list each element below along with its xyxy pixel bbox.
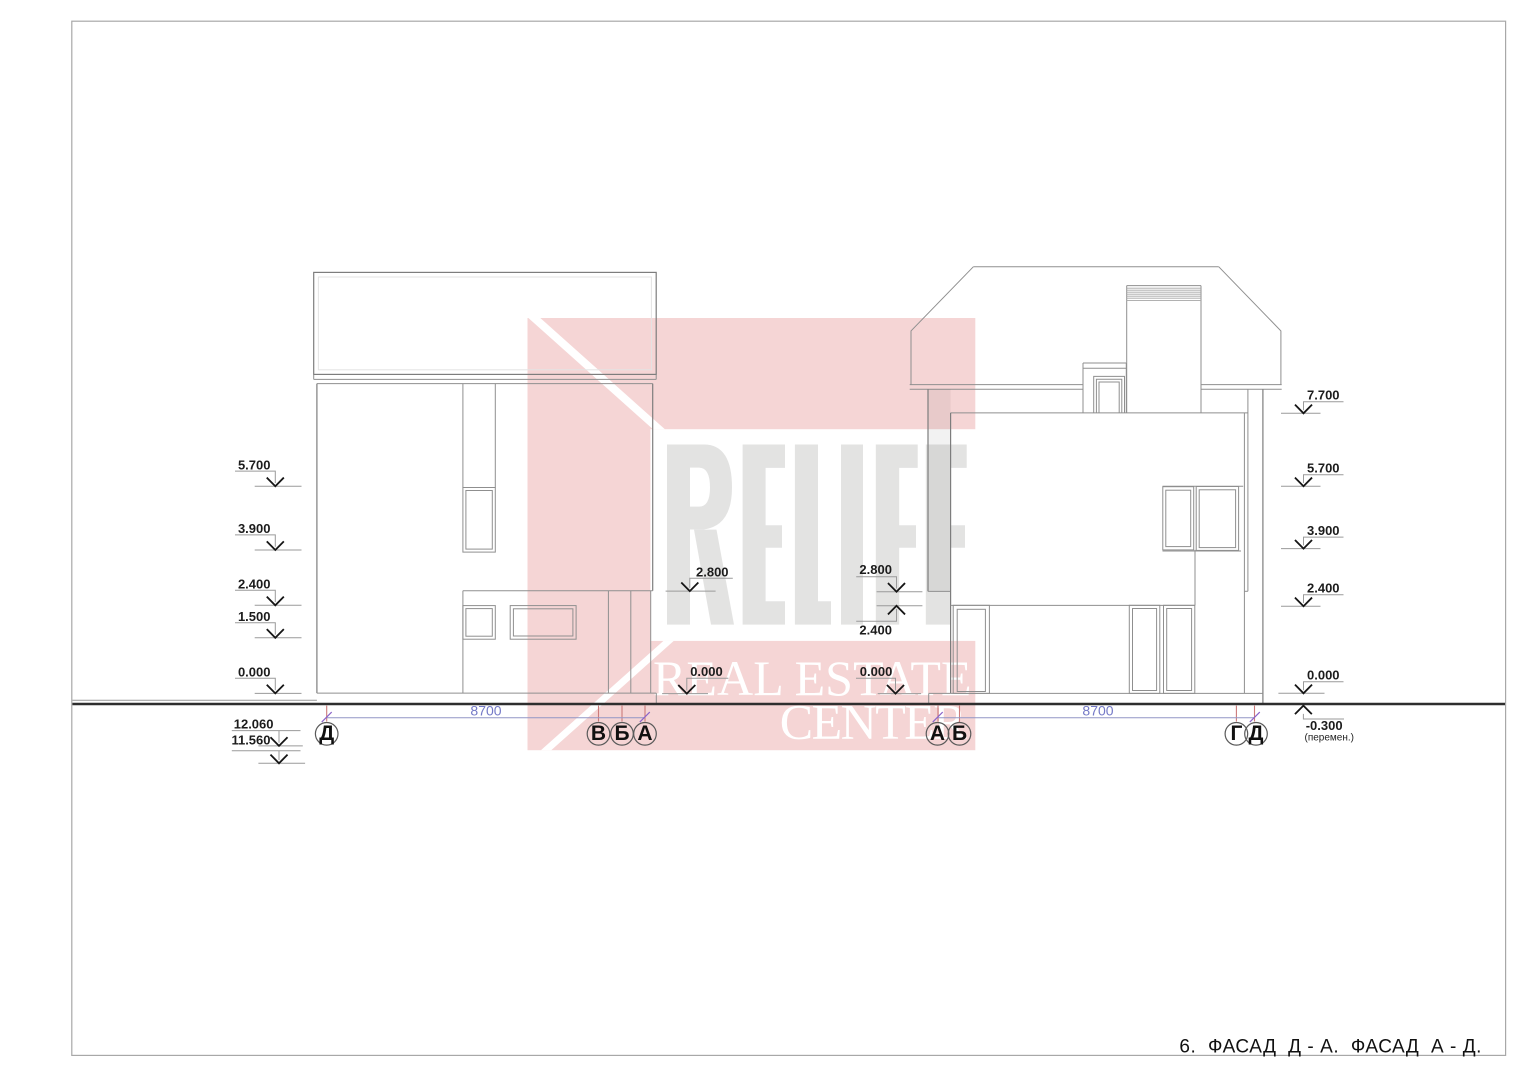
svg-text:8700: 8700 xyxy=(470,703,501,719)
svg-text:0.000: 0.000 xyxy=(238,665,271,680)
svg-text:12.060: 12.060 xyxy=(234,716,274,731)
svg-text:6. ФАСАД Д - А. ФАСАД А -: 6. ФАСАД Д - А. ФАСАД А - Д. xyxy=(1179,1037,1482,1058)
svg-text:(перемен.): (перемен.) xyxy=(1305,733,1355,744)
svg-text:5.700: 5.700 xyxy=(238,457,271,472)
svg-text:2.400: 2.400 xyxy=(1307,581,1340,596)
svg-text:2.400: 2.400 xyxy=(238,576,271,591)
svg-text:А: А xyxy=(930,722,945,745)
svg-text:0.000: 0.000 xyxy=(860,664,893,679)
svg-text:Б: Б xyxy=(952,722,967,745)
svg-text:1.500: 1.500 xyxy=(238,609,271,624)
svg-text:Г: Г xyxy=(1230,722,1242,745)
svg-text:0.000: 0.000 xyxy=(1307,668,1340,683)
svg-text:3.900: 3.900 xyxy=(238,521,271,536)
svg-text:11.560: 11.560 xyxy=(231,733,270,748)
svg-text:В: В xyxy=(591,722,606,745)
svg-text:2.800: 2.800 xyxy=(696,564,729,579)
svg-text:-0.300: -0.300 xyxy=(1306,718,1343,733)
svg-text:0.000: 0.000 xyxy=(690,664,723,679)
svg-text:2.800: 2.800 xyxy=(859,562,892,577)
svg-text:7.700: 7.700 xyxy=(1307,388,1340,403)
svg-text:Д: Д xyxy=(1249,722,1264,745)
svg-text:Д: Д xyxy=(319,722,334,745)
svg-text:8700: 8700 xyxy=(1082,703,1113,719)
svg-text:3.900: 3.900 xyxy=(1307,523,1340,538)
svg-text:2.400: 2.400 xyxy=(859,622,892,637)
svg-text:5.700: 5.700 xyxy=(1307,461,1340,476)
svg-text:А: А xyxy=(637,722,652,745)
svg-text:Б: Б xyxy=(614,722,629,745)
